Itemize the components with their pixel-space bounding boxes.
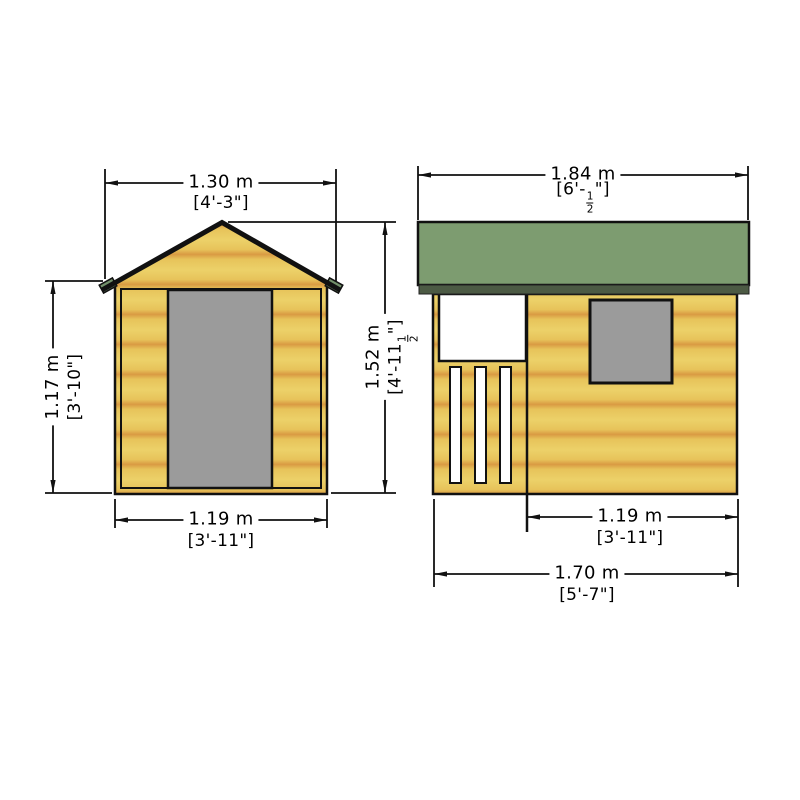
dim-overall-height-imperial: [4'-1112"]	[385, 319, 420, 395]
front-door-opening	[168, 290, 272, 488]
dim-arrow	[115, 517, 128, 522]
fraction: 12	[587, 192, 594, 215]
dim-arrow	[725, 514, 738, 519]
technical-drawing-canvas: 1.30 m [4'-3"] 1.84 m [6'-12"] 1.17 m [3…	[0, 0, 800, 800]
dim-overall-height-label: 1.52 m [4'-1112"]	[360, 314, 422, 400]
dim-arrow	[323, 180, 336, 185]
side-roof-panel	[418, 222, 749, 285]
dim-side-partial-width-imperial-label: [3'-11"]	[592, 529, 669, 549]
dim-arrow	[418, 172, 431, 177]
dim-arrow	[50, 281, 55, 294]
dim-arrow	[382, 222, 387, 235]
side-elevation-view	[418, 222, 749, 532]
side-railing-slat	[450, 367, 461, 483]
dim-front-roof-width-imperial-label: [4'-3"]	[188, 194, 254, 214]
dim-front-roof-width-metric-label: 1.30 m	[183, 173, 258, 194]
dim-front-eaves-height-label: 1.17 m [3'-10"]	[40, 349, 88, 426]
dim-side-base-width-imperial-label: [5'-7"]	[554, 586, 620, 606]
side-railing-slat	[475, 367, 486, 483]
side-window	[590, 300, 672, 383]
side-railing-slat	[500, 367, 511, 483]
imperial-prefix: [4'-11	[385, 343, 405, 395]
dim-arrow	[382, 480, 387, 493]
dim-front-base-width-metric-label: 1.19 m	[183, 510, 258, 531]
imperial-prefix: [6'-	[556, 180, 585, 200]
dim-overall-height-metric: 1.52 m	[362, 319, 385, 395]
fraction: 12	[397, 335, 420, 342]
dim-side-base-width-metric-label: 1.70 m	[549, 564, 624, 585]
dim-front-eaves-height-metric: 1.17 m	[42, 354, 65, 421]
elevation-drawing-svg	[0, 0, 800, 800]
imperial-suffix: "]	[385, 319, 405, 334]
dim-arrow	[314, 517, 327, 522]
dim-arrow	[105, 180, 118, 185]
dim-side-partial-width-metric-label: 1.19 m	[592, 507, 667, 528]
fraction-denominator: 2	[407, 335, 420, 342]
fraction-numerator: 1	[397, 335, 408, 342]
dim-arrow	[735, 172, 748, 177]
dim-arrow	[50, 480, 55, 493]
side-porch-opening	[439, 294, 526, 361]
imperial-suffix: "]	[595, 180, 610, 200]
dim-front-eaves-height-imperial: [3'-10"]	[65, 354, 86, 421]
fraction-denominator: 2	[587, 202, 594, 215]
front-elevation-view	[99, 222, 342, 494]
dim-arrow	[434, 571, 447, 576]
dim-arrow	[725, 571, 738, 576]
fraction-numerator: 1	[587, 192, 594, 203]
dim-front-base-width-imperial-label: [3'-11"]	[183, 532, 260, 552]
dim-arrow	[527, 514, 540, 519]
side-roof-fascia	[419, 285, 749, 294]
dim-side-roof-width-imperial-label: [6'-12"]	[551, 181, 615, 216]
